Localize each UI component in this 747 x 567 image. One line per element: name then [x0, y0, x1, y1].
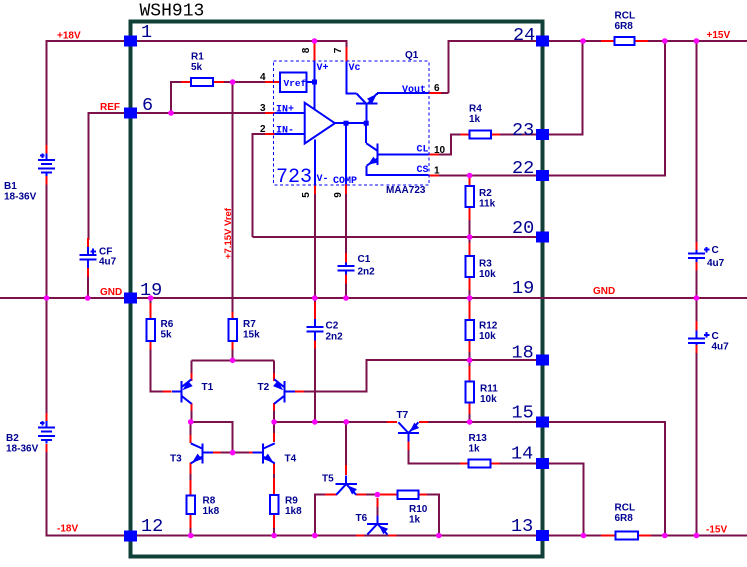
svg-text:Vref: Vref: [284, 78, 307, 89]
svg-text:C1: C1: [358, 254, 371, 265]
svg-text:R11: R11: [480, 384, 498, 395]
svg-text:R2: R2: [479, 188, 492, 199]
svg-text:14: 14: [511, 444, 533, 465]
svg-text:19: 19: [512, 278, 534, 299]
svg-text:V-: V-: [317, 174, 329, 185]
svg-text:6R8: 6R8: [615, 513, 634, 524]
svg-text:-18V: -18V: [57, 524, 78, 535]
svg-text:T5: T5: [322, 474, 334, 485]
svg-text:MAA723: MAA723: [386, 185, 426, 196]
svg-text:R4: R4: [469, 104, 482, 115]
svg-text:IN-: IN-: [276, 126, 294, 137]
svg-text:1: 1: [141, 22, 152, 43]
svg-text:1k: 1k: [469, 114, 481, 125]
svg-text:R9: R9: [285, 496, 298, 507]
svg-text:C: C: [712, 245, 719, 256]
svg-text:9: 9: [333, 192, 344, 198]
svg-text:+15V: +15V: [707, 30, 731, 41]
svg-text:+7.15V Vref: +7.15V Vref: [223, 207, 234, 259]
svg-text:T1: T1: [202, 382, 214, 393]
svg-text:T3: T3: [170, 454, 182, 465]
svg-text:18-36V: 18-36V: [6, 444, 39, 455]
svg-text:5k: 5k: [161, 330, 173, 341]
svg-text:R13: R13: [469, 433, 488, 444]
svg-text:R6: R6: [161, 319, 174, 330]
svg-text:C2: C2: [326, 321, 339, 332]
svg-text:+18V: +18V: [57, 31, 81, 42]
svg-text:10k: 10k: [479, 269, 496, 280]
svg-text:1k8: 1k8: [203, 506, 220, 517]
svg-text:2n2: 2n2: [326, 332, 344, 343]
svg-text:R10: R10: [409, 504, 428, 515]
svg-text:B2: B2: [6, 433, 19, 444]
svg-text:18: 18: [512, 343, 534, 364]
svg-text:4u7: 4u7: [712, 342, 730, 353]
svg-text:COMP: COMP: [333, 176, 357, 187]
svg-text:18-36V: 18-36V: [4, 192, 37, 203]
svg-text:CL: CL: [417, 145, 429, 156]
svg-text:R7: R7: [243, 319, 256, 330]
svg-text:20: 20: [512, 218, 534, 239]
svg-text:R12: R12: [479, 321, 498, 332]
svg-text:23: 23: [512, 120, 534, 141]
svg-text:15: 15: [512, 403, 534, 424]
svg-text:2n2: 2n2: [358, 267, 376, 278]
svg-text:C: C: [712, 331, 719, 342]
svg-text:723: 723: [276, 166, 312, 189]
svg-text:R8: R8: [203, 496, 216, 507]
svg-text:12: 12: [141, 516, 163, 537]
svg-text:4: 4: [260, 72, 266, 83]
svg-text:1: 1: [434, 166, 440, 177]
svg-text:Q1: Q1: [405, 50, 419, 61]
svg-text:T4: T4: [285, 454, 297, 465]
svg-text:RCL: RCL: [615, 503, 636, 514]
svg-text:13: 13: [511, 516, 533, 537]
svg-text:1k: 1k: [409, 515, 421, 526]
svg-text:10k: 10k: [480, 394, 497, 405]
svg-text:10: 10: [434, 145, 446, 156]
svg-text:IN+: IN+: [276, 105, 294, 116]
svg-text:5k: 5k: [191, 62, 203, 73]
svg-text:V+: V+: [317, 63, 329, 74]
svg-text:6R8: 6R8: [615, 21, 634, 32]
svg-text:6: 6: [142, 95, 153, 116]
svg-text:RCL: RCL: [615, 11, 636, 22]
svg-text:7: 7: [333, 47, 344, 53]
svg-text:T6: T6: [356, 513, 368, 524]
svg-text:Vc: Vc: [349, 63, 361, 74]
svg-text:WSH913: WSH913: [140, 2, 205, 22]
svg-text:2: 2: [260, 124, 266, 135]
svg-text:Vout: Vout: [402, 85, 426, 96]
svg-text:22: 22: [512, 158, 534, 179]
svg-text:R3: R3: [479, 259, 492, 270]
svg-text:15k: 15k: [243, 330, 260, 341]
svg-text:T2: T2: [258, 382, 270, 393]
svg-text:GND: GND: [100, 287, 122, 298]
svg-text:10k: 10k: [479, 331, 496, 342]
svg-text:B1: B1: [4, 181, 17, 192]
svg-text:4u7: 4u7: [99, 257, 117, 268]
svg-text:CS: CS: [417, 165, 429, 176]
svg-text:1k: 1k: [469, 444, 481, 455]
svg-text:24: 24: [513, 25, 535, 46]
svg-text:4u7: 4u7: [707, 258, 725, 269]
svg-text:6: 6: [434, 83, 440, 94]
svg-text:T7: T7: [397, 410, 409, 421]
svg-text:11k: 11k: [479, 199, 496, 210]
svg-text:-15V: -15V: [706, 525, 727, 536]
svg-text:5: 5: [301, 192, 312, 198]
svg-text:GND: GND: [593, 286, 615, 297]
svg-text:REF: REF: [100, 102, 120, 113]
svg-text:1k8: 1k8: [285, 506, 302, 517]
svg-text:R1: R1: [191, 52, 204, 63]
svg-text:3: 3: [260, 103, 266, 114]
svg-text:8: 8: [301, 47, 312, 53]
